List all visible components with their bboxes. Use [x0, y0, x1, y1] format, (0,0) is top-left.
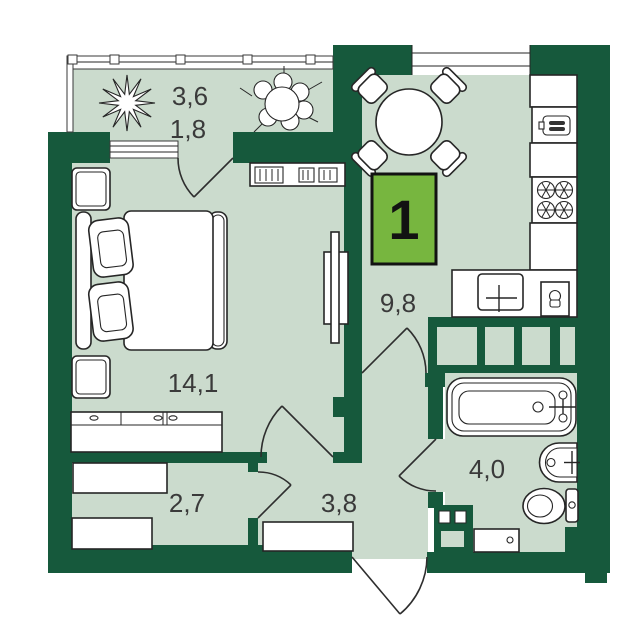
kitchen-sink-icon [478, 274, 523, 312]
wardrobe-hall-1 [73, 463, 167, 493]
bathtub [447, 378, 576, 436]
vent-opening [439, 511, 450, 523]
window-gap [412, 45, 530, 75]
pillow [88, 281, 135, 342]
nightstand-top [72, 168, 110, 210]
vent-shaft [522, 327, 550, 365]
wall-left [48, 132, 72, 573]
bedroom-area-label: 14,1 [168, 368, 219, 398]
tv-stand [250, 163, 345, 186]
wall-right-step [585, 573, 607, 583]
glazing-post [243, 55, 252, 64]
bedroom-window [110, 141, 178, 158]
nightstand-bottom [72, 356, 110, 398]
entrance-opening [352, 545, 427, 559]
pillow [88, 217, 135, 278]
hallway-area-label: 2,7 [169, 488, 205, 518]
wardrobe-hall-2 [72, 518, 152, 549]
balcony-area-reduced-label: 1,8 [170, 114, 206, 144]
wall-partition-foot [333, 452, 362, 463]
floor-plan-page: 3,6 1,8 14,1 9,8 2,7 3,8 4,0 1 [0, 0, 642, 631]
window-sill [110, 141, 178, 158]
wardrobe-corridor [263, 522, 353, 551]
wall-bath-stub-top [425, 373, 445, 387]
washbasin [540, 443, 581, 482]
balcony-area-label: 3,6 [172, 81, 208, 111]
balcony-side-frame [67, 56, 73, 132]
apartment-number: 1 [388, 188, 419, 251]
bedroom-door-opening [267, 452, 333, 463]
corridor-strip-floor [362, 317, 428, 552]
vent-shaft [437, 327, 477, 365]
vent-shaft [441, 531, 464, 547]
glazing-post [176, 55, 185, 64]
glazing-post [306, 55, 315, 64]
water-heater-icon [541, 282, 569, 316]
floor-plan: 3,6 1,8 14,1 9,8 2,7 3,8 4,0 1 [0, 0, 642, 631]
wall-washer-stub [565, 527, 577, 553]
glazing-post [110, 55, 119, 64]
apartment-number-badge: 1 [372, 174, 436, 264]
corridor-area-label: 3,8 [321, 488, 357, 518]
kitchen-window [412, 45, 530, 75]
entrance-door [352, 557, 427, 614]
wall-bedroom-bottom [48, 452, 267, 463]
wall-bath-left [428, 387, 443, 439]
wall-divider-bottom [248, 518, 258, 545]
glazing-post [68, 55, 77, 64]
toilet [523, 489, 578, 524]
vent-shaft [560, 327, 575, 365]
wall-bottom-right [427, 552, 607, 573]
washing-machine [474, 529, 519, 552]
bathroom-door-opening [428, 439, 445, 492]
kitchen-area-label: 9,8 [380, 288, 416, 318]
bathroom-area-label: 4,0 [469, 454, 505, 484]
dining-table [376, 89, 442, 155]
wall-divider-top [248, 463, 258, 472]
wall-right [577, 45, 610, 573]
wall-bedroom-top-right [233, 132, 345, 163]
vent-opening [455, 511, 466, 523]
hall-door-opening [248, 472, 258, 518]
bed-blanket [124, 211, 213, 350]
fridge-icon [539, 116, 570, 135]
vent-shaft [485, 327, 514, 365]
wall-bedroom-top-left [48, 132, 110, 163]
dresser [71, 412, 222, 452]
wall-partition-stub [333, 397, 344, 417]
